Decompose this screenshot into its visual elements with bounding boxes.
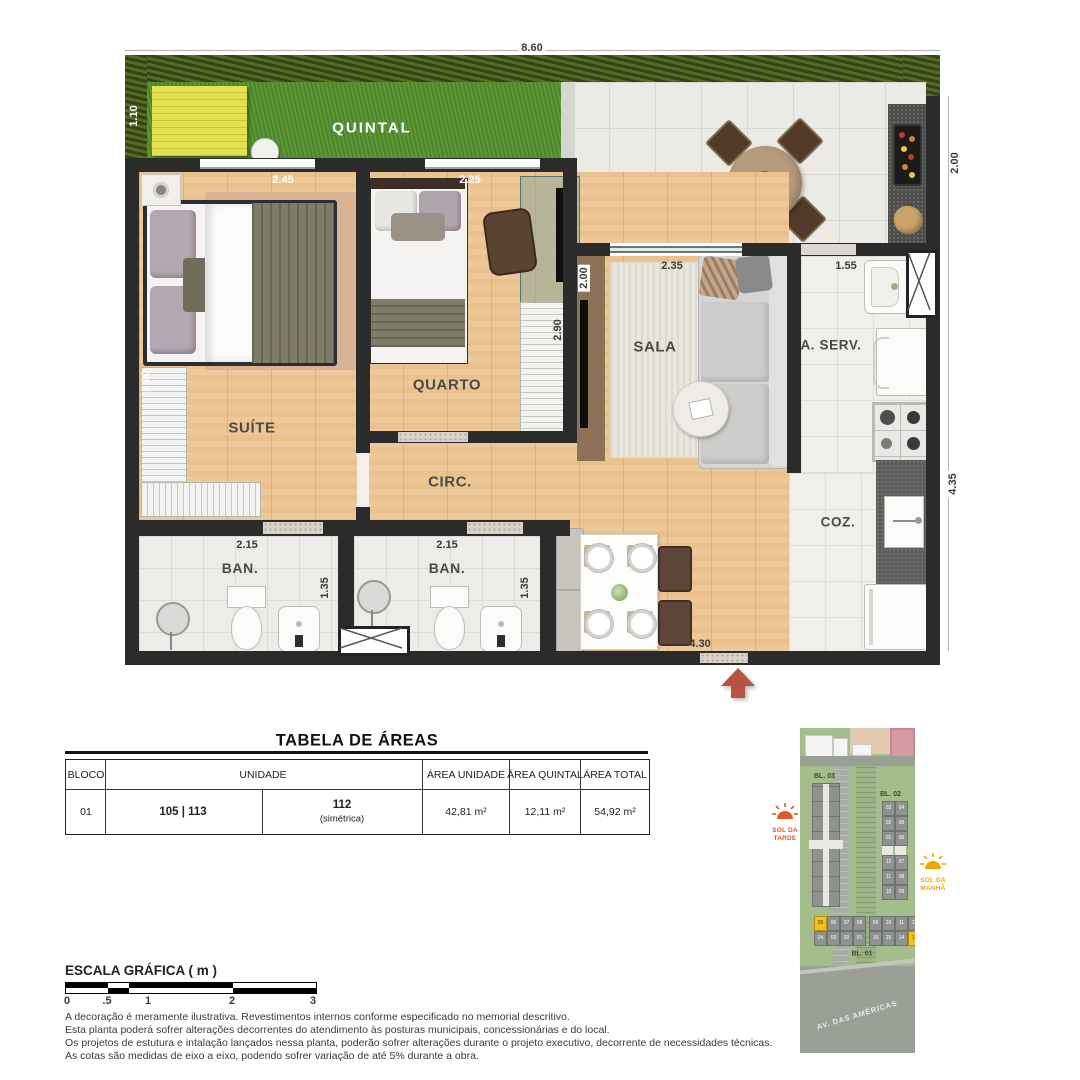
bl01-label: BL. 01 [851, 951, 872, 958]
aserv-label: A. SERV. [800, 338, 861, 353]
barbecue-grill [893, 124, 922, 186]
door-ban-suite [263, 522, 323, 534]
scale-bar [65, 982, 317, 994]
floor-plan-page: 8.60 QUINTAL 1.10 2.00 SUÍTE [0, 0, 1080, 1080]
wall-ban-divider [338, 536, 354, 632]
sun-icon [772, 802, 798, 822]
disclaimer-line: Esta planta poderá sofrer alterações dec… [65, 1024, 610, 1036]
unit-cell: 05 [895, 816, 908, 831]
circ-label: CIRC. [428, 474, 472, 491]
faucet-icon [295, 635, 303, 647]
toilet-tank [430, 586, 469, 608]
unit-cell-highlight: 13 [908, 931, 915, 946]
table-line [66, 789, 649, 790]
stove-burner [907, 437, 920, 450]
refrigerator [864, 584, 928, 650]
cell-simetrica-note: (simétrica) [320, 814, 364, 825]
bl03-label: BL. 03 [814, 773, 835, 780]
sink-drain [296, 621, 302, 627]
sun-afternoon-label: SOL DA TARDE [762, 827, 808, 843]
unit-cell-highlight: 05 [814, 916, 827, 931]
bl01-row-top: 05 06 07 08 09 10 11 12 [814, 916, 915, 931]
unit-cell: 04 [895, 801, 908, 816]
sun-morning-label: SOL DA MANHÃ [908, 877, 958, 893]
plate [585, 544, 613, 572]
entrance-arrow-stem [731, 686, 745, 698]
bl02-label: BL. 02 [880, 791, 901, 798]
plate [585, 610, 613, 638]
plate [628, 610, 656, 638]
door-aserv [800, 244, 856, 255]
desk-chair [482, 207, 538, 277]
site-map: BL. 03 BL. 02 03 02 01 12 11 10 04 05 06… [800, 728, 915, 1053]
kitchen-sink [884, 496, 924, 548]
cell-area-unidade: 42,81 m² [445, 806, 486, 818]
wall-ban-social-right [540, 536, 556, 654]
unit-cell: 06 [895, 831, 908, 846]
scale-tick-2: 2 [229, 995, 235, 1007]
bed-blanket [371, 299, 465, 347]
bl02-col-right: 04 05 06 07 08 09 [895, 801, 908, 900]
scale-seg [66, 988, 108, 993]
unit-cell: 08 [853, 916, 866, 931]
disclaimer-line: As cotas são medidas de eixo a eixo, pod… [65, 1050, 479, 1062]
unit-cell: 12 [882, 855, 895, 870]
plate [628, 544, 656, 572]
bl03-entry [809, 840, 843, 849]
bl02-entry [882, 846, 893, 855]
header-area-unidade: ÁREA UNIDADE [427, 769, 505, 781]
unit-cell: 07 [840, 916, 853, 931]
unit-cell: 01 [882, 831, 895, 846]
unit-cell: 11 [895, 916, 908, 931]
wall-bottom [125, 651, 940, 665]
toilet-bowl [231, 606, 262, 650]
sala-label: SALA [633, 339, 676, 356]
table-line [262, 789, 263, 834]
suite-label: SUÍTE [228, 420, 275, 437]
dim-sala-tv-wall: 2.00 [578, 264, 590, 291]
dining-table [580, 534, 658, 650]
coffee-table [673, 381, 729, 437]
bl03-building [812, 783, 840, 907]
unit-cell: 08 [895, 870, 908, 885]
unit-cell: 11 [882, 870, 895, 885]
quarto-bed [370, 178, 468, 364]
sun-afternoon: SOL DA TARDE [762, 802, 808, 843]
unit-cell: 09 [869, 916, 882, 931]
amenity-building [833, 738, 848, 757]
fridge-handle [869, 589, 873, 645]
scale-tick-1: 1 [145, 995, 151, 1007]
sofa-cushion [701, 302, 769, 382]
unit-cell: 12 [908, 916, 915, 931]
header-bloco: BLOCO [68, 769, 105, 781]
sink-drain [498, 621, 504, 627]
door-suite [357, 453, 369, 507]
unit-cell: 09 [895, 885, 908, 900]
stove-burner [880, 410, 895, 425]
shower-head-icon [357, 580, 391, 614]
dim-quarto-width: 2.25 [459, 174, 480, 186]
sun-icon [920, 852, 946, 872]
unit-cell: 03 [827, 931, 840, 946]
ban-suite-label: BAN. [222, 560, 259, 576]
bed-blanket [252, 203, 334, 363]
unit-cell: 06 [827, 916, 840, 931]
duvet [205, 204, 253, 362]
bl02-col-left: 03 02 01 12 11 10 [882, 801, 895, 900]
amenity-building [805, 735, 833, 757]
disclaimer-line: Os projetos de estutura e intalação lanç… [65, 1037, 772, 1049]
tv-sala [580, 300, 588, 428]
scale-seg [129, 988, 149, 993]
quarto-label: QUARTO [413, 377, 481, 394]
lamp-icon [153, 182, 169, 198]
table-line [422, 760, 423, 834]
quintal-label: QUINTAL [332, 120, 412, 137]
disclaimer-line: A decoração é meramente ilustrativa. Rev… [65, 1011, 570, 1023]
dim-ban-suite-depth: 1.35 [319, 577, 331, 598]
suite-wardrobe-horizontal [141, 482, 261, 517]
scale-tick-05: .5 [102, 995, 111, 1007]
washing-machine [876, 328, 930, 396]
door-ban-social [467, 522, 523, 534]
dim-suite-depth: 3.90 [140, 370, 152, 391]
cell-unidades: 105 | 113 [159, 806, 206, 818]
bl02-entry [895, 846, 906, 855]
laundry-tub [864, 260, 912, 314]
dim-quintal-depth: 1.10 [128, 105, 140, 126]
title-underline [65, 751, 648, 754]
bl02-building: 03 02 01 12 11 10 04 05 06 07 08 09 [882, 801, 908, 893]
dim-hall-width: 4.30 [689, 638, 710, 650]
dim-ban-suite-width: 2.15 [236, 539, 257, 551]
faucet-knob [915, 517, 922, 524]
throw-pillow [735, 254, 773, 294]
unit-cell: 14 [895, 931, 908, 946]
dim-sala-width: 2.35 [661, 260, 682, 272]
scale-seg [233, 988, 316, 993]
dim-aserv-width: 1.55 [835, 260, 856, 272]
header-area-quintal: ÁREA QUINTAL [507, 769, 583, 781]
unit-cell: 02 [882, 816, 895, 831]
wall-left [125, 158, 139, 665]
wood-deck [152, 86, 247, 156]
dimension-line-right [948, 96, 949, 651]
areas-table: BLOCO UNIDADE ÁREA UNIDADE ÁREA QUINTAL … [65, 759, 650, 835]
stove-burner [881, 438, 892, 449]
ventilation-shaft [906, 250, 938, 318]
ban-social-label: BAN. [429, 560, 466, 576]
nightstand [141, 174, 181, 206]
sliding-door-sala [610, 243, 742, 256]
unit-cell: 15 [882, 931, 895, 946]
wall-sala-aserv [787, 243, 801, 473]
toilet-tank [227, 586, 266, 608]
dim-patio-depth: 2.00 [949, 149, 961, 176]
headboard [371, 179, 465, 189]
unit-cell: 16 [869, 931, 882, 946]
bath-sink [278, 606, 320, 652]
unit-cell: 04 [814, 931, 827, 946]
sofa [698, 253, 794, 469]
unit-cell: 03 [882, 801, 895, 816]
wall-right [926, 96, 940, 665]
cell-bloco: 01 [80, 806, 92, 818]
dim-ban-social-width: 2.15 [436, 539, 457, 551]
unit-cell: 01 [853, 931, 866, 946]
window-quarto [425, 159, 540, 169]
hedge-top [125, 55, 940, 82]
dim-suite-width: 2.45 [272, 174, 293, 186]
bl01-row-bottom: 04 03 02 01 16 15 14 13 [814, 931, 915, 946]
table-line [105, 760, 106, 834]
cell-area-total: 54,92 m² [594, 806, 635, 818]
header-area-total: ÁREA TOTAL [583, 769, 647, 781]
scale-bar-row-bottom [66, 988, 316, 993]
dim-right-depth: 4.35 [947, 470, 959, 497]
sun-morning: SOL DA MANHÃ [908, 852, 958, 893]
washer-door-arc [873, 337, 889, 389]
shower-stem [170, 632, 172, 650]
entrance-door [700, 653, 748, 663]
scale-title: ESCALA GRÁFICA ( m ) [65, 963, 217, 978]
dim-ban-social-depth: 1.35 [519, 577, 531, 598]
dining-chair [658, 546, 692, 592]
dim-total-width: 8.60 [518, 42, 545, 54]
suite-bed [143, 200, 337, 366]
entrance-arrow-icon [721, 668, 755, 686]
toilet-bowl [434, 606, 465, 650]
stove-burner [907, 411, 920, 424]
unit-cell: 10 [882, 885, 895, 900]
scale-seg [108, 988, 129, 993]
tub-drain [891, 283, 898, 290]
access-road [800, 756, 915, 766]
pillow [391, 213, 445, 241]
unit-cell: 02 [840, 931, 853, 946]
ventilation-shaft [338, 626, 410, 656]
cell-area-quintal: 12,11 m² [525, 806, 566, 818]
dining-chair [658, 600, 692, 646]
wall-quarto-sala [563, 158, 577, 443]
scale-seg [149, 988, 233, 993]
stove [872, 402, 932, 462]
sports-court [890, 728, 915, 758]
faucet-icon [497, 635, 505, 647]
coz-label: COZ. [821, 515, 856, 530]
window-suite [200, 159, 315, 169]
flower-centerpiece [611, 584, 628, 601]
amenity-building [852, 744, 872, 756]
quintal-patio-curb [561, 82, 575, 160]
book [688, 398, 713, 420]
grill-food [899, 132, 905, 138]
door-quarto [398, 432, 468, 442]
header-unidade: UNIDADE [239, 769, 286, 781]
unit-cell: 10 [882, 916, 895, 931]
wall-suite-quarto [356, 158, 370, 453]
areas-table-title: TABELA DE ÁREAS [276, 732, 438, 751]
bath-sink [480, 606, 522, 652]
cell-simetrica-num: 112 [333, 799, 352, 811]
patio-side-table [894, 206, 923, 234]
unit-cell: 07 [895, 855, 908, 870]
scale-tick-3: 3 [310, 995, 316, 1007]
scale-tick-0: 0 [64, 995, 70, 1007]
shower-head-icon [156, 602, 190, 636]
bl01-building: 05 06 07 08 09 10 11 12 04 03 02 01 16 1… [814, 916, 908, 946]
